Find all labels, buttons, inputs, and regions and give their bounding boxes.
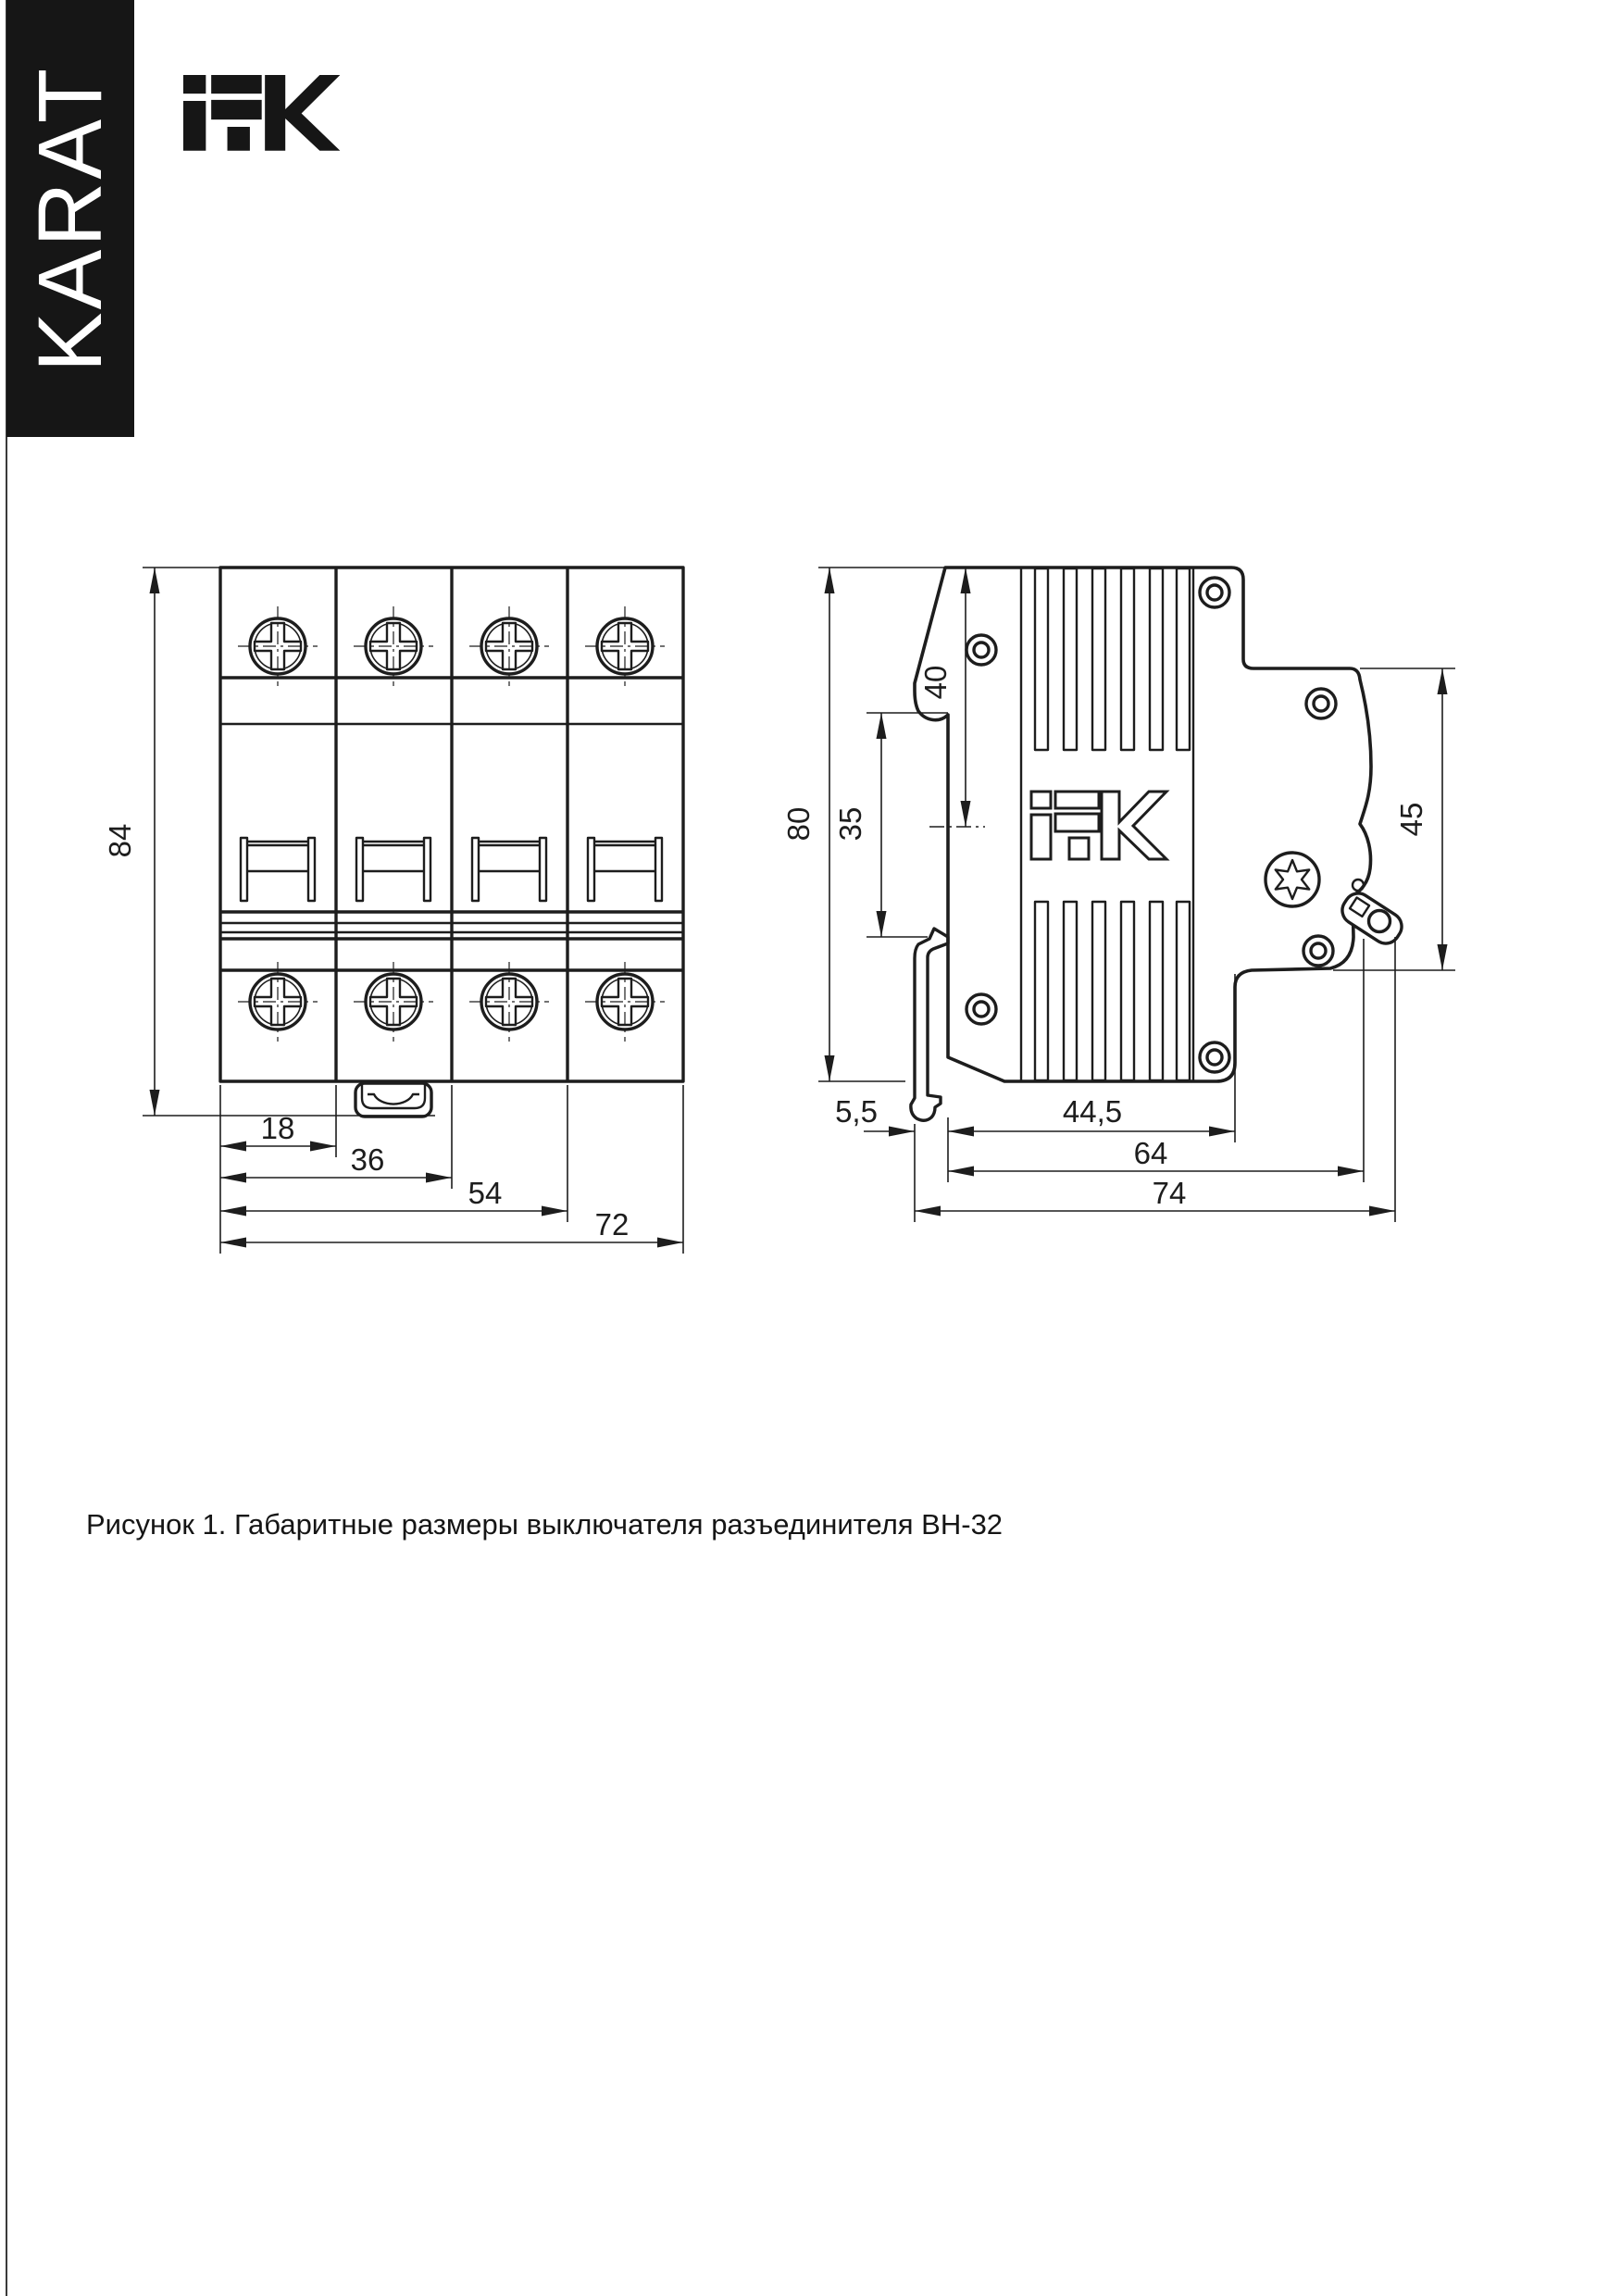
screw-terminal-top-3 [469, 606, 549, 686]
screw-terminal-bottom-4 [585, 962, 665, 1042]
rivet-3 [1306, 689, 1336, 718]
rivet-1 [966, 635, 996, 665]
toggle-handle-1 [241, 838, 315, 901]
rivet-4 [966, 994, 996, 1024]
screw-terminal-bottom-2 [354, 962, 433, 1042]
vent-ribs-top [1035, 568, 1190, 750]
figure-caption: Рисунок 1. Габаритные размеры выключател… [86, 1508, 1197, 1541]
dim-35: 35 [833, 807, 867, 842]
dim-40: 40 [918, 666, 953, 700]
rivet-5 [1200, 1042, 1229, 1072]
technical-drawing: 84 18 36 54 72 [0, 0, 1621, 2296]
side-view: 80 35 40 45 5,5 44,5 64 74 [781, 568, 1455, 1222]
front-view: 84 18 36 54 72 [103, 568, 683, 1254]
din-spring-clip [911, 929, 948, 1120]
dim-5-5: 5,5 [835, 1094, 878, 1129]
dim-72: 72 [595, 1207, 630, 1242]
rivet-6 [1303, 936, 1333, 966]
screw-terminal-bottom-1 [238, 962, 318, 1042]
toggle-handle-2 [356, 838, 430, 901]
iek-logo [183, 75, 340, 151]
iek-emboss [1031, 792, 1166, 859]
dim-74: 74 [1153, 1176, 1187, 1210]
screw-terminal-bottom-3 [469, 962, 549, 1042]
page: KARAT [0, 0, 1621, 2296]
dim-84: 84 [103, 824, 137, 858]
dim-44-5: 44,5 [1063, 1094, 1122, 1129]
dim-54: 54 [468, 1176, 503, 1210]
din-clip-front [355, 1083, 431, 1117]
screw-terminal-top-1 [238, 606, 318, 686]
fixation-lever [1337, 888, 1407, 949]
screw-terminal-top-4 [585, 606, 665, 686]
dim-80: 80 [781, 807, 816, 842]
rivet-2 [1200, 578, 1229, 607]
torx-screw [1266, 853, 1319, 906]
dim-36: 36 [351, 1142, 385, 1177]
dim-18: 18 [261, 1111, 295, 1145]
dim-45: 45 [1394, 803, 1428, 837]
toggle-handle-3 [472, 838, 546, 901]
dim-64: 64 [1134, 1136, 1168, 1170]
vent-ribs-bottom [1035, 902, 1190, 1080]
toggle-handle-4 [588, 838, 662, 901]
screw-terminal-top-2 [354, 606, 433, 686]
pin-hole [1353, 880, 1364, 891]
